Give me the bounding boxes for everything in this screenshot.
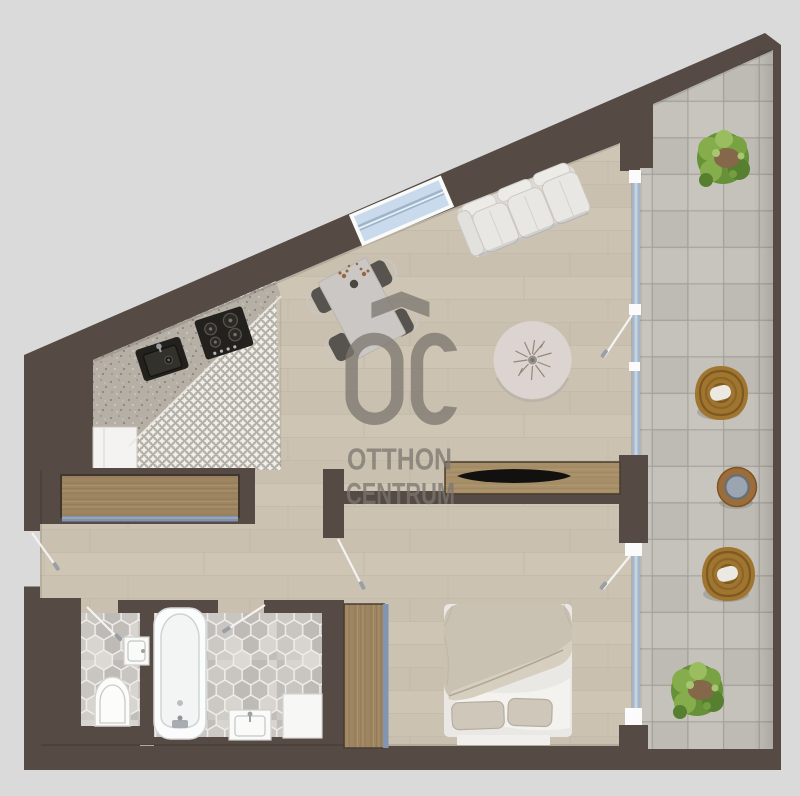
svg-text:CENTRUM: CENTRUM bbox=[346, 476, 455, 511]
svg-text:OTTHON: OTTHON bbox=[347, 441, 452, 476]
